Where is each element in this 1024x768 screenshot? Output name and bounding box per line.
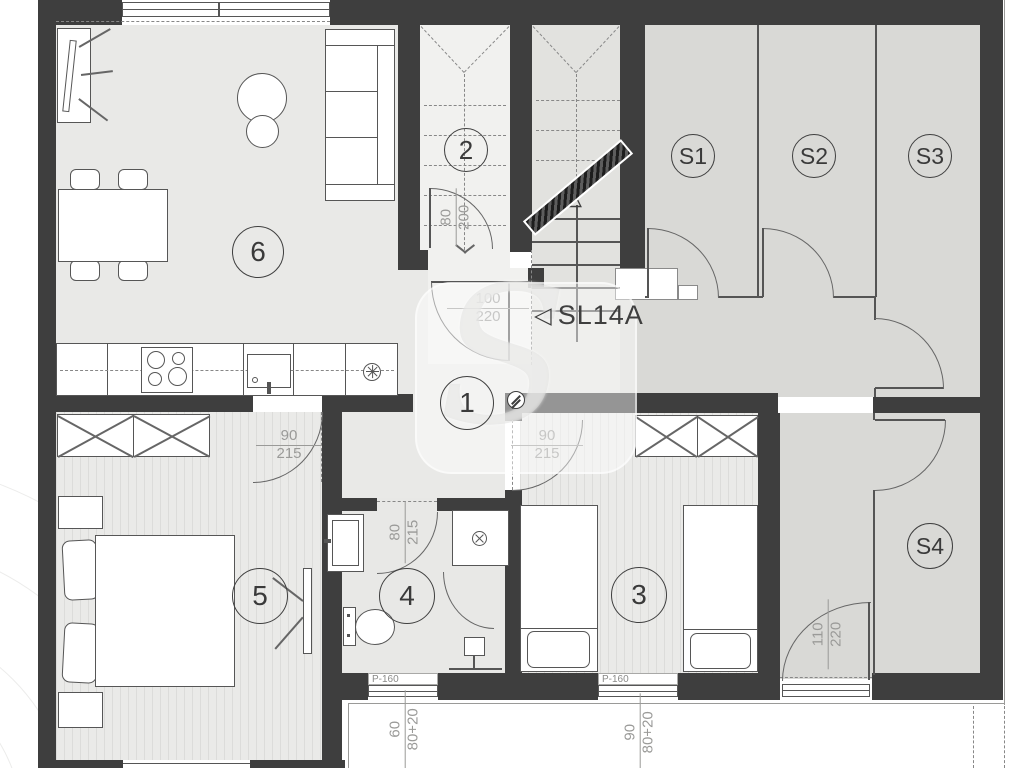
pillow <box>61 539 99 601</box>
entry-direction-icon: ◁ <box>534 302 553 329</box>
single-bed-line <box>520 628 598 629</box>
wardrobe-room3-divider <box>697 415 698 457</box>
dim-bedroom5-door: 90 215 <box>256 428 322 463</box>
s3-door-leaf <box>875 387 943 389</box>
double-bed <box>95 535 235 687</box>
room-label-3: 3 <box>611 567 667 623</box>
dining-table <box>58 189 168 262</box>
wall-left <box>38 0 56 768</box>
storage-label-s1: S1 <box>671 134 715 178</box>
radiator <box>464 637 485 656</box>
sofa <box>325 29 395 201</box>
s3-lobby-wall-b <box>874 388 876 397</box>
window-room3-midline <box>599 691 677 692</box>
wall-kitchen-bedroom-left <box>38 394 253 412</box>
kitchen-counter-centerline <box>60 370 394 371</box>
dim-balcony-right-a: 90 <box>623 693 641 768</box>
dim-room2-width: 80 <box>439 188 457 246</box>
kitchen-sink-drain <box>252 377 258 383</box>
window-bedroom5-bottom-line <box>123 763 250 764</box>
balcony-top-line <box>348 703 1004 704</box>
storage-label-s4-text: S4 <box>916 533 944 560</box>
s4-exit-midline <box>783 690 869 691</box>
room-label-1-text: 1 <box>459 387 475 419</box>
dining-chair <box>70 169 100 190</box>
storage-label-s4: S4 <box>907 523 953 569</box>
storage-label-s2-text: S2 <box>800 143 828 170</box>
dim-room2-height: 200 <box>457 188 474 246</box>
divider-s1-s2 <box>757 25 759 297</box>
dim-balcony-right-b: 80+20 <box>641 693 658 768</box>
toilet-dot <box>347 634 350 637</box>
cooktop-burner <box>168 367 187 386</box>
sofa-seat-line <box>326 91 377 92</box>
cooktop-burner <box>172 352 185 365</box>
room-label-2: 2 <box>444 128 488 172</box>
window-label-b-text: P-160 <box>602 674 629 685</box>
dim-balcony-right: 90 80+20 <box>623 693 658 768</box>
window-top-midline <box>123 9 329 10</box>
bath-sink-tap <box>324 539 331 543</box>
toilet-dot <box>347 614 350 617</box>
unit-label: ◁ SL14A <box>534 300 644 331</box>
wall-right <box>980 0 1003 700</box>
kitchen-sink-tap <box>267 382 271 394</box>
wall-bath-top-left <box>342 498 377 511</box>
cooktop-burner <box>148 372 162 386</box>
room-label-3-text: 3 <box>631 579 647 611</box>
room-label-6: 6 <box>232 226 284 278</box>
storage-label-s1-text: S1 <box>679 143 707 170</box>
dim-bath-height: 215 <box>406 501 423 563</box>
room-label-4: 4 <box>379 568 435 624</box>
window-label-b: P-160 <box>598 673 678 685</box>
unit-label-text: SL14A <box>558 300 644 331</box>
dim-bath-width: 80 <box>388 501 406 563</box>
room-label-5: 5 <box>232 568 288 624</box>
closet-front-line-b <box>718 296 763 298</box>
nightstand <box>58 496 103 529</box>
room-label-2-text: 2 <box>459 135 473 166</box>
wall-living-hall-block <box>398 250 428 270</box>
radiator-bar <box>449 668 502 670</box>
dim-s4-exit-door: 110 220 <box>811 599 846 669</box>
sofa-back-line <box>377 45 378 184</box>
window-label-a-text: P-160 <box>372 674 399 685</box>
dim-bath-door: 80 215 <box>388 501 423 563</box>
bath-sink-basin <box>332 520 359 566</box>
room-label-5-text: 5 <box>252 580 268 612</box>
wardrobe-bedroom5-divider <box>133 414 134 457</box>
room-label-4-text: 4 <box>399 580 415 612</box>
s3-lobby-wall-a <box>874 297 876 320</box>
overhang-dashes-top <box>56 21 330 22</box>
storage-label-s2: S2 <box>792 134 836 178</box>
stair-dash-step <box>536 130 620 131</box>
dim-room2-door: 80 200 <box>439 188 474 246</box>
pillow <box>527 631 590 668</box>
wall-room3-right <box>758 413 780 673</box>
dining-chair <box>118 260 148 281</box>
closet-room2-door-leaf <box>429 188 431 248</box>
storage-label-s3-text: S3 <box>916 143 944 170</box>
dim-balcony-left-a: 60 <box>388 690 406 768</box>
wall-closet-stairs <box>510 0 532 252</box>
cooktop-burner <box>147 351 165 369</box>
balcony-left-line <box>348 703 349 768</box>
nightstand <box>58 692 103 728</box>
closet-dash-shelf <box>424 105 506 106</box>
storage-label-s3: S3 <box>908 134 952 178</box>
balcony-dashed-right-b <box>1004 706 1005 768</box>
room-label-1: 1 <box>440 376 494 430</box>
dim-balcony-left: 60 80+20 <box>388 690 423 768</box>
stair-dash-step <box>536 100 620 101</box>
tv-bedroom5 <box>303 568 312 654</box>
stair-dash-center <box>576 74 577 192</box>
sofa-armrest-line <box>326 45 394 46</box>
sofa-seat-line <box>326 137 377 138</box>
wall-corridor-right <box>873 397 983 413</box>
s4-exit-door-leaf <box>868 602 870 680</box>
s2-door-leaf <box>762 228 764 297</box>
plan-right-edge-line <box>1004 0 1005 705</box>
single-bed-line <box>683 629 758 630</box>
s1-door-leaf <box>647 228 649 297</box>
dining-chair <box>118 169 148 190</box>
wall-living-hall <box>398 20 420 270</box>
wall-kitchen-bedroom-right <box>322 394 413 412</box>
dining-chair <box>70 260 100 281</box>
wall-bedroom5-right <box>322 412 342 768</box>
divider-s2-s3 <box>875 25 877 297</box>
watermark-letter: S <box>438 246 568 467</box>
room-label-6-text: 6 <box>250 236 266 268</box>
wall-stairs-storage <box>620 0 645 272</box>
s4-exit-sill <box>782 684 870 697</box>
dim-s4-height: 220 <box>829 599 846 669</box>
dim-s4-width: 110 <box>811 599 829 669</box>
window-top <box>122 2 330 17</box>
pillow <box>690 633 751 669</box>
pillow <box>61 622 99 684</box>
s4-divider-b <box>873 490 875 675</box>
s4-inner-door-leaf <box>875 419 945 421</box>
window-top-divider <box>218 3 220 16</box>
dim-bedroom5-height: 215 <box>256 446 322 463</box>
sofa-armrest-line <box>326 184 394 185</box>
floor-plan: △ <box>0 0 1024 768</box>
door-gap-bedroom5 <box>253 394 322 412</box>
riser-symbol <box>507 391 525 409</box>
balcony-dashed-right-a <box>973 706 974 768</box>
closet-front-line-c <box>833 296 875 298</box>
dim-balcony-left-b: 80+20 <box>406 690 423 768</box>
dim-bedroom5-width: 90 <box>256 428 322 446</box>
side-table-small <box>246 115 279 148</box>
window-label-a: P-160 <box>368 673 438 685</box>
